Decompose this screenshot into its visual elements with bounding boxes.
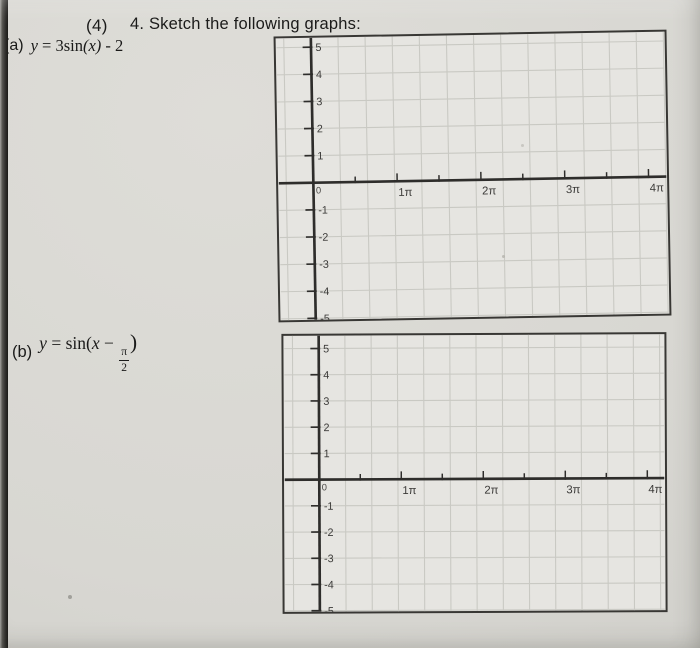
- formula-segment: ): [130, 330, 137, 354]
- part-b-formula: y = sin(x − π2): [39, 330, 137, 374]
- grid-line-vertical: [501, 34, 506, 316]
- y-tick-label: -5: [324, 606, 334, 612]
- grid-line-vertical: [581, 335, 582, 611]
- grid-line-vertical: [660, 334, 661, 610]
- grid-line-vertical: [555, 335, 556, 611]
- grid-line-horizontal: [280, 258, 667, 265]
- grid-line-vertical: [446, 35, 451, 317]
- y-tick-label: 2: [317, 123, 323, 135]
- formula-segment: - 2: [101, 36, 123, 55]
- part-b-label: (b): [12, 343, 32, 362]
- formula-segment: y: [31, 36, 38, 55]
- grid-line-vertical: [555, 34, 560, 316]
- x-tick-label: 3π: [566, 184, 581, 196]
- x-tick-label: 2π: [482, 185, 497, 197]
- worksheet-photo: (4) 4. Sketch the following graphs: (a) …: [0, 0, 700, 648]
- y-tick-label: 3: [316, 96, 322, 108]
- grid-line-vertical: [636, 32, 641, 314]
- y-tick-label: 4: [316, 69, 322, 81]
- grid-line-vertical: [284, 38, 289, 320]
- fraction: π2: [119, 347, 129, 374]
- grid-line-vertical: [476, 335, 477, 611]
- y-tick-label: -3: [319, 259, 329, 271]
- grid-line-horizontal: [280, 231, 667, 238]
- grid-line-horizontal: [279, 204, 666, 211]
- grid-line-vertical: [397, 335, 398, 611]
- graph-grid-b: 1-12-23-34-45-501π2π3π4π: [281, 332, 667, 614]
- grid-line-vertical: [365, 37, 370, 319]
- formula-segment: = sin(: [47, 333, 92, 353]
- grid-line-horizontal: [276, 41, 663, 48]
- grid-line-vertical: [419, 36, 424, 318]
- x-tick-label: 2π: [484, 485, 498, 497]
- grid-line-vertical: [371, 335, 372, 611]
- points-label: (4): [86, 16, 108, 36]
- y-tick-label: -5: [320, 313, 330, 320]
- grid-line-vertical: [338, 37, 343, 319]
- y-tick-label: -4: [320, 286, 330, 298]
- fraction-denominator: 2: [121, 361, 127, 374]
- y-tick-label: -2: [324, 527, 334, 539]
- x-tick-label: 4π: [650, 182, 665, 194]
- grid-line-vertical: [582, 33, 587, 315]
- x-axis-line: [285, 478, 664, 480]
- y-tick-label: 4: [323, 370, 329, 382]
- grid-line-vertical: [633, 334, 634, 610]
- page-edge-shadow: [0, 0, 8, 648]
- fraction-numerator: π: [119, 347, 129, 361]
- x-axis-line: [279, 177, 666, 184]
- formula-segment: x: [92, 333, 100, 353]
- part-a-prompt: (a) y = 3sin(x) - 2: [4, 36, 123, 56]
- grid-line-vertical: [528, 34, 533, 316]
- grid-line-vertical: [424, 335, 425, 611]
- grid-line-horizontal: [278, 149, 665, 156]
- grid-line-horizontal: [281, 312, 668, 319]
- x-tick-label: 1π: [398, 187, 413, 199]
- origin-label: 0: [322, 482, 327, 492]
- y-tick-label: 5: [315, 42, 321, 54]
- formula-segment: −: [100, 333, 119, 353]
- y-axis-line: [311, 38, 316, 320]
- y-tick-label: 3: [323, 396, 329, 408]
- part-b-prompt: (b) y = sin(x − π2): [12, 338, 137, 366]
- x-tick-label: 1π: [402, 485, 416, 497]
- grid-line-horizontal: [281, 285, 668, 292]
- grid-line-vertical: [292, 336, 293, 612]
- question-title: 4. Sketch the following graphs:: [130, 15, 361, 34]
- grid-line-vertical: [609, 33, 614, 315]
- x-tick-label: 4π: [648, 484, 662, 496]
- grid-line-vertical: [607, 334, 608, 610]
- grid-line-vertical: [528, 335, 529, 611]
- grid-line-vertical: [450, 335, 451, 611]
- formula-segment: y: [39, 333, 47, 353]
- y-tick-label: -1: [318, 205, 328, 217]
- y-tick-label: -4: [324, 579, 334, 591]
- y-tick-label: 5: [323, 343, 329, 355]
- grid-line-vertical: [502, 335, 503, 611]
- y-tick-label: 2: [323, 422, 329, 434]
- y-tick-label: 1: [324, 448, 330, 460]
- y-tick-label: -1: [324, 501, 334, 513]
- y-tick-label: -2: [319, 232, 329, 244]
- formula-segment: (x): [83, 36, 101, 55]
- x-tick-label: 3π: [566, 484, 580, 496]
- graph-grid-a: 1-12-23-34-45-501π2π3π4π: [274, 30, 672, 323]
- pencil-speck: [68, 595, 72, 599]
- grid-line-horizontal: [277, 68, 664, 75]
- y-axis-line: [319, 336, 320, 612]
- part-a-formula: y = 3sin(x) - 2: [31, 36, 124, 56]
- formula-segment: = 3sin: [38, 36, 83, 55]
- graph-a-axes: 1-12-23-34-45-501π2π3π4π: [276, 32, 670, 321]
- grid-line-vertical: [392, 36, 397, 318]
- y-tick-label: -3: [324, 553, 334, 565]
- origin-label: 0: [316, 185, 321, 195]
- grid-line-vertical: [663, 32, 668, 314]
- y-tick-label: 1: [317, 150, 323, 162]
- graph-b-axes: 1-12-23-34-45-501π2π3π4π: [283, 334, 665, 612]
- grid-line-vertical: [473, 35, 478, 317]
- grid-line-horizontal: [277, 95, 664, 102]
- grid-line-horizontal: [278, 122, 665, 129]
- grid-line-vertical: [345, 336, 346, 612]
